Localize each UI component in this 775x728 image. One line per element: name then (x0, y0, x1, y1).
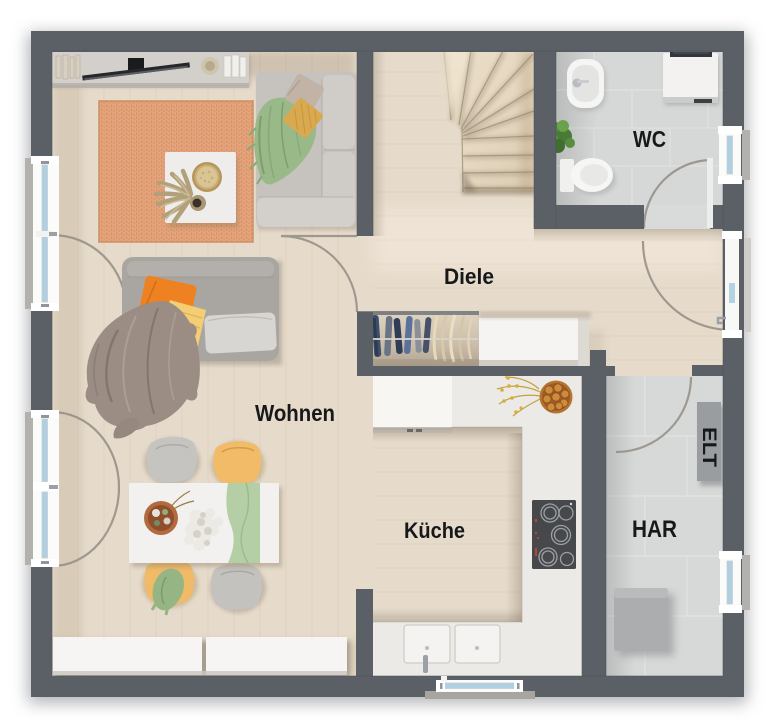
svg-text:Wohnen: Wohnen (255, 400, 335, 426)
svg-text:HAR: HAR (632, 516, 677, 543)
svg-text:WC: WC (633, 126, 666, 152)
svg-text:ELT: ELT (698, 427, 719, 467)
svg-text:Küche: Küche (404, 518, 465, 543)
svg-text:Diele: Diele (444, 264, 494, 289)
